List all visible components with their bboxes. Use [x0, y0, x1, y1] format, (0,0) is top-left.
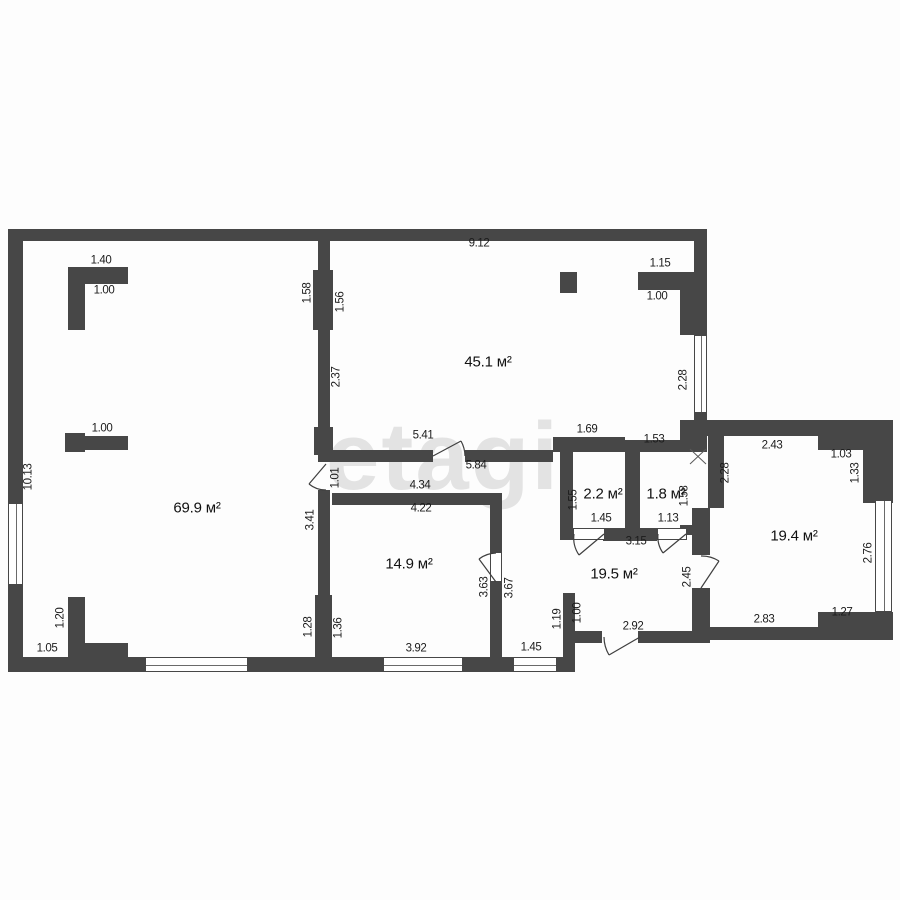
dimension-label: 2.43	[762, 440, 783, 452]
floor-plan-canvas: etagi 1.401.009.121.151.001.001.691.532.…	[0, 0, 900, 900]
dimension-label: 1.05	[37, 643, 58, 655]
room-area-label: 69.9 м²	[173, 501, 220, 516]
dimension-label: 10.13	[23, 464, 35, 491]
room-area-label: 14.9 м²	[385, 557, 432, 572]
dimension-label: 2.92	[623, 621, 644, 633]
dimension-label: 1.20	[55, 608, 67, 629]
wall-segment	[68, 267, 85, 330]
dimension-label: 1.01	[330, 468, 342, 489]
wall-segment	[318, 330, 330, 430]
dimension-label: 3.67	[504, 578, 516, 599]
dimension-label: 2.83	[754, 614, 775, 626]
dimension-label: 5.84	[466, 460, 487, 472]
wall-segment	[315, 595, 332, 657]
window-midline	[701, 336, 702, 412]
wall-segment	[8, 229, 707, 241]
dimension-label: 3.15	[626, 536, 647, 548]
dimension-label: 5.41	[413, 430, 434, 442]
dimension-label: 1.58	[302, 283, 314, 304]
floor-plan: etagi 1.401.009.121.151.001.001.691.532.…	[0, 0, 900, 900]
wall-segment	[680, 290, 707, 335]
wall-segment	[490, 582, 502, 662]
wall-segment	[313, 270, 333, 330]
dimension-label: 4.34	[410, 480, 431, 492]
dimension-label: 2.76	[863, 543, 875, 564]
dimension-label: 1.45	[591, 513, 612, 525]
dimension-label: 1.19	[552, 609, 564, 630]
dimension-label: 1.27	[832, 607, 853, 619]
wall-segment	[625, 440, 640, 540]
window-midline	[384, 665, 462, 666]
wall-segment	[318, 490, 330, 595]
wall-segment	[638, 272, 694, 290]
dimension-label: 1.03	[831, 449, 852, 461]
window	[145, 657, 248, 672]
room-area-label: 1.8 м²	[646, 487, 685, 502]
dimension-label: 1.33	[850, 463, 862, 484]
dimension-label: 1.40	[91, 255, 112, 267]
dimension-label: 1.53	[644, 434, 665, 446]
window	[8, 503, 23, 585]
window-midline	[884, 501, 885, 611]
wall-segment	[700, 627, 818, 640]
wall-segment	[863, 420, 893, 503]
window	[875, 500, 892, 612]
dimension-label: 1.00	[647, 291, 668, 303]
window-midline	[16, 504, 17, 584]
dimension-label: 1.28	[303, 617, 315, 638]
dimension-label: 3.41	[305, 510, 317, 531]
dimension-label: 1.55	[568, 490, 580, 511]
dimension-label: 2.28	[720, 463, 732, 484]
door-sill	[657, 528, 687, 540]
dimension-label: 1.00	[92, 423, 113, 435]
wall-segment	[318, 450, 433, 462]
door-sill	[573, 528, 605, 540]
wall-segment	[575, 631, 602, 643]
wall-segment	[8, 229, 23, 503]
wall-segment	[318, 240, 330, 272]
window-midline	[514, 665, 556, 666]
dimension-label: 3.92	[406, 643, 427, 655]
dimension-label: 3.63	[479, 577, 491, 598]
dimension-label: 1.15	[650, 258, 671, 270]
wall-segment	[692, 588, 710, 637]
window	[694, 335, 707, 413]
dimension-label: 1.56	[335, 292, 347, 313]
dimension-label: 1.36	[333, 618, 345, 639]
dimension-label: 9.12	[469, 238, 490, 250]
wall-segment	[818, 420, 863, 450]
window-midline	[146, 665, 247, 666]
wall-segment	[490, 505, 502, 552]
wall-segment	[65, 433, 85, 452]
dimension-label: 2.37	[331, 367, 343, 388]
wall-segment	[692, 508, 710, 555]
dimension-label: 2.45	[682, 567, 694, 588]
dimension-label: 1.45	[521, 642, 542, 654]
dimension-label: 1.00	[572, 603, 584, 624]
wall-segment	[700, 420, 818, 436]
dimension-label: 4.22	[411, 503, 432, 515]
room-area-label: 2.2 м²	[583, 487, 622, 502]
wall-segment	[818, 612, 893, 640]
dimension-label: 1.00	[94, 285, 115, 297]
wall-segment	[68, 643, 128, 657]
dimension-label: 1.13	[658, 513, 679, 525]
dimension-label: 1.69	[577, 424, 598, 436]
door-sill	[490, 552, 502, 582]
room-area-label: 19.5 м²	[590, 567, 637, 582]
window	[383, 657, 463, 672]
room-area-label: 19.4 м²	[770, 529, 817, 544]
dimension-label: 2.28	[678, 370, 690, 391]
room-area-label: 45.1 м²	[464, 355, 511, 370]
window	[513, 657, 557, 672]
wall-segment	[560, 272, 577, 293]
